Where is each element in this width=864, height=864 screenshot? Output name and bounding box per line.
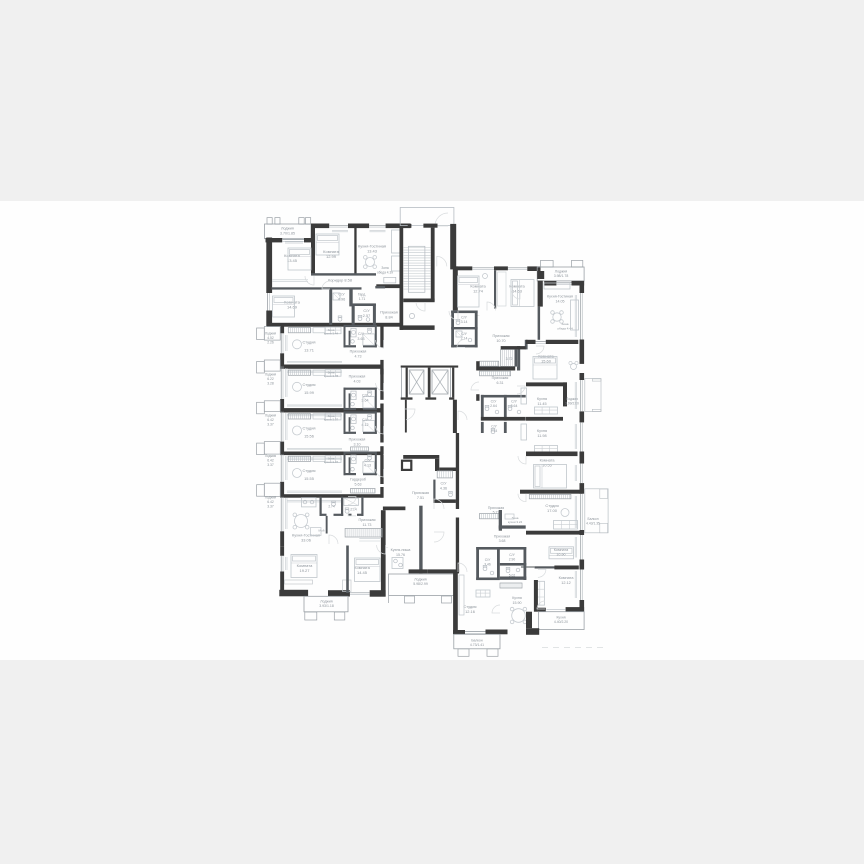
svg-text:Лоджия: Лоджия (281, 227, 294, 231)
svg-text:2.14: 2.14 (491, 429, 498, 433)
svg-text:С/У: С/У (485, 558, 491, 562)
svg-text:6.22: 6.22 (267, 377, 274, 381)
svg-text:14.45: 14.45 (357, 570, 368, 575)
svg-text:6.42: 6.42 (267, 459, 274, 463)
svg-text:С/У: С/У (363, 309, 370, 313)
svg-text:3.70/1.85: 3.70/1.85 (280, 231, 295, 235)
svg-text:3.68: 3.68 (499, 539, 506, 543)
svg-text:10.70: 10.70 (496, 339, 505, 343)
svg-text:13.71: 13.71 (304, 347, 314, 352)
svg-text:11.73: 11.73 (363, 523, 372, 527)
svg-text:С/У: С/У (511, 400, 518, 404)
svg-text:Кухня-ниша: Кухня-ниша (391, 548, 411, 552)
svg-text:15.76: 15.76 (396, 553, 405, 557)
svg-text:Прихожая: Прихожая (488, 506, 504, 510)
svg-text:Коридор 8.58: Коридор 8.58 (328, 278, 352, 283)
svg-text:С/У: С/У (491, 400, 498, 404)
svg-text:Прихожая: Прихожая (492, 376, 509, 380)
svg-text:3.10: 3.10 (354, 442, 361, 446)
svg-text:3.14: 3.14 (461, 320, 468, 324)
svg-text:Студия: Студия (302, 426, 315, 431)
svg-text:15.56: 15.56 (304, 434, 314, 439)
svg-text:С/У: С/У (509, 553, 515, 557)
svg-text:Комната: Комната (540, 459, 556, 463)
svg-text:6.42: 6.42 (267, 500, 274, 504)
svg-text:5.98/2.99: 5.98/2.99 (413, 582, 428, 586)
svg-text:33.06: 33.06 (301, 538, 311, 543)
svg-text:2.64: 2.64 (490, 404, 497, 408)
svg-text:5.63: 5.63 (355, 482, 362, 486)
svg-text:кухни 3.37: кухни 3.37 (324, 418, 339, 422)
svg-text:Кухня-Гостиная: Кухня-Гостиная (547, 295, 573, 299)
svg-text:7.51: 7.51 (417, 496, 424, 500)
svg-text:3.63: 3.63 (357, 337, 364, 341)
svg-text:Кухня: Кухня (512, 596, 522, 600)
svg-text:8.84: 8.84 (385, 316, 392, 320)
svg-text:Прихожая: Прихожая (350, 350, 367, 354)
svg-text:Балкон: Балкон (587, 517, 598, 521)
svg-text:Лоджия: Лоджия (555, 270, 568, 274)
svg-text:3.46: 3.46 (484, 563, 491, 567)
svg-text:6.31: 6.31 (497, 381, 504, 385)
svg-text:Лоджия: Лоджия (265, 332, 277, 336)
svg-text:Прихожая: Прихожая (412, 491, 429, 495)
svg-text:Кухня: Кухня (556, 616, 565, 620)
svg-text:3.37: 3.37 (267, 423, 274, 427)
svg-text:С/У: С/У (491, 425, 497, 429)
svg-text:2.26: 2.26 (267, 341, 274, 345)
svg-text:Лоджия: Лоджия (414, 578, 427, 582)
svg-text:2.57: 2.57 (363, 314, 370, 318)
svg-text:4.96: 4.96 (338, 298, 345, 302)
svg-text:17.00: 17.00 (547, 508, 558, 513)
svg-text:кухни 3.24: кухни 3.24 (508, 520, 523, 524)
svg-text:Студия: Студия (302, 339, 315, 344)
svg-text:Гард.: Гард. (358, 293, 366, 297)
svg-text:кухни 3.78: кухни 3.78 (324, 374, 339, 378)
svg-text:3.37: 3.37 (267, 505, 274, 509)
svg-text:4.73/1.41: 4.73/1.41 (470, 643, 484, 647)
svg-text:4.40/2.20: 4.40/2.20 (554, 620, 568, 624)
svg-text:11.45: 11.45 (537, 402, 546, 406)
svg-text:Кухня: Кухня (537, 429, 547, 433)
svg-text:Балкон: Балкон (471, 639, 482, 643)
svg-text:Студия: Студия (302, 382, 315, 387)
svg-text:3.99/2.00: 3.99/2.00 (565, 402, 579, 406)
svg-text:19.27: 19.27 (299, 568, 310, 573)
svg-text:Студия: Студия (302, 468, 315, 473)
svg-text:2.90: 2.90 (509, 558, 516, 562)
svg-text:3.72: 3.72 (506, 357, 513, 361)
svg-text:Прихожая: Прихожая (358, 518, 375, 522)
svg-text:6.42: 6.42 (267, 418, 274, 422)
svg-text:Зона: Зона (381, 266, 388, 270)
svg-text:Лоджия: Лоджия (566, 397, 578, 401)
svg-text:12.12: 12.12 (561, 581, 571, 585)
svg-text:14.69: 14.69 (287, 305, 298, 310)
svg-text:5.27: 5.27 (493, 511, 500, 515)
svg-text:Кухня: Кухня (537, 397, 547, 401)
svg-text:Прихожая: Прихожая (380, 311, 398, 315)
svg-text:Мой: Мой (319, 529, 325, 533)
svg-text:Лоджия: Лоджия (265, 373, 277, 377)
svg-text:12.16: 12.16 (465, 609, 475, 614)
svg-text:Прихожая: Прихожая (492, 334, 509, 338)
svg-text:12.74: 12.74 (473, 289, 484, 294)
svg-text:обеда 4.39: обеда 4.39 (377, 270, 393, 274)
svg-text:кухни 3.44: кухни 3.44 (324, 331, 339, 335)
svg-text:3.37: 3.37 (267, 463, 274, 467)
svg-text:3.28: 3.28 (267, 382, 274, 386)
svg-text:4.52: 4.52 (267, 336, 274, 340)
svg-text:3.93/1.18: 3.93/1.18 (319, 604, 334, 608)
svg-text:Лоджия: Лоджия (265, 496, 277, 500)
svg-text:1.71: 1.71 (359, 297, 366, 301)
svg-text:15.99: 15.99 (304, 390, 314, 395)
svg-text:13.45: 13.45 (287, 258, 298, 263)
svg-text:Лоджия: Лоджия (265, 414, 277, 418)
svg-text:15.90: 15.90 (513, 601, 522, 605)
svg-text:4.36: 4.36 (440, 486, 447, 490)
svg-text:4.43/1.35: 4.43/1.35 (586, 522, 600, 526)
svg-text:Гардероб: Гардероб (350, 478, 366, 482)
svg-text:Прихожая: Прихожая (494, 535, 510, 539)
svg-text:Прихожая: Прихожая (349, 438, 366, 442)
svg-text:Прихожая: Прихожая (349, 375, 366, 379)
svg-text:С/У: С/У (461, 316, 468, 320)
svg-text:Лоджия: Лоджия (265, 454, 277, 458)
svg-text:5.02: 5.02 (509, 574, 516, 578)
svg-text:Лоджия: Лоджия (320, 600, 333, 604)
svg-text:Комната: Комната (559, 576, 575, 580)
svg-text:3.98/1.78: 3.98/1.78 (554, 274, 569, 278)
svg-text:С/У: С/У (440, 482, 447, 486)
svg-text:14.05: 14.05 (556, 299, 565, 303)
svg-text:11.98: 11.98 (537, 434, 546, 438)
svg-text:4.13: 4.13 (364, 464, 371, 468)
svg-text:4.73: 4.73 (355, 354, 362, 358)
svg-text:13.43: 13.43 (367, 249, 377, 254)
svg-text:14.63: 14.63 (512, 289, 522, 294)
svg-text:15.55: 15.55 (304, 476, 314, 481)
svg-text:4.03: 4.03 (354, 379, 361, 383)
svg-text:кухни 3.37: кухни 3.37 (324, 460, 339, 464)
